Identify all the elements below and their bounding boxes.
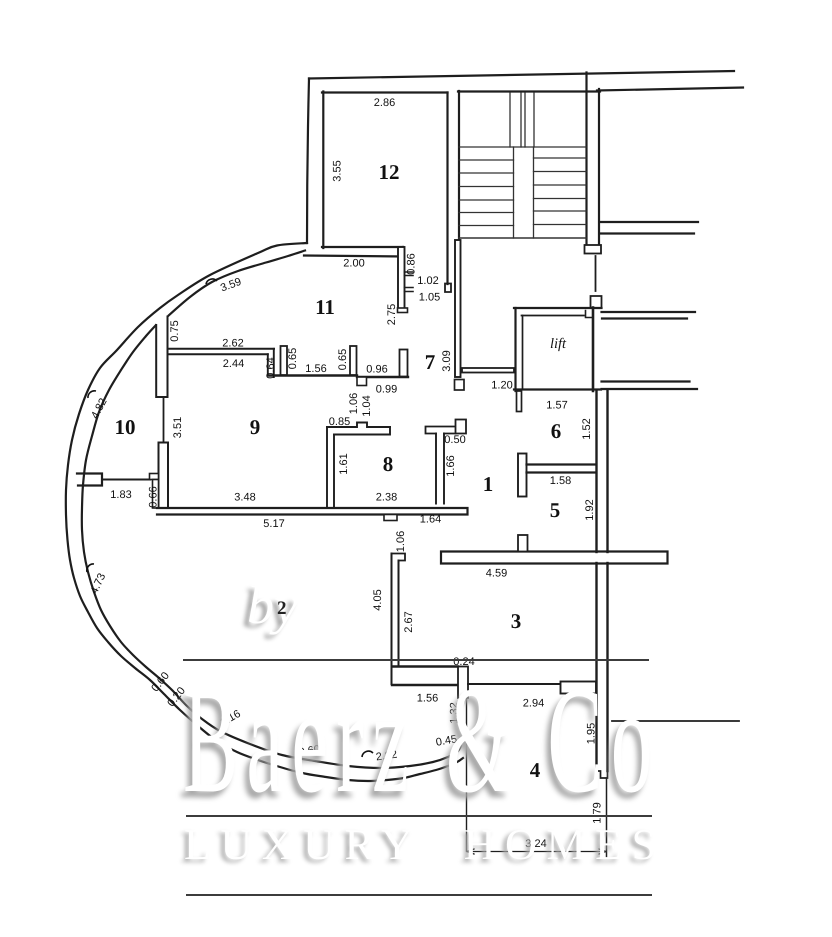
svg-text:10: 10 — [115, 415, 136, 439]
svg-text:5.17: 5.17 — [263, 518, 284, 530]
svg-text:0.86: 0.86 — [406, 253, 418, 274]
svg-text:0.96: 0.96 — [366, 364, 387, 376]
svg-text:2.00: 2.00 — [343, 258, 364, 270]
svg-text:1: 1 — [483, 472, 494, 496]
svg-text:3: 3 — [511, 609, 522, 633]
svg-text:4.73: 4.73 — [88, 571, 108, 595]
svg-text:1.04: 1.04 — [361, 395, 373, 416]
svg-text:3.59: 3.59 — [219, 276, 243, 295]
svg-text:0.65: 0.65 — [287, 348, 299, 369]
svg-text:1.57: 1.57 — [546, 400, 567, 412]
svg-text:4.82: 4.82 — [89, 396, 110, 421]
svg-text:0.50: 0.50 — [444, 434, 465, 446]
svg-text:1.52: 1.52 — [581, 418, 593, 439]
svg-text:9: 9 — [250, 415, 261, 439]
svg-text:1.06: 1.06 — [395, 531, 407, 552]
svg-text:1.06: 1.06 — [348, 393, 360, 414]
svg-text:0.99: 0.99 — [376, 384, 397, 396]
svg-text:1.02: 1.02 — [417, 275, 438, 287]
svg-text:3.48: 3.48 — [234, 492, 255, 504]
svg-text:0.75: 0.75 — [169, 320, 181, 341]
svg-text:3.09: 3.09 — [441, 350, 453, 371]
svg-text:3.55: 3.55 — [332, 160, 344, 181]
svg-text:4.05: 4.05 — [372, 589, 384, 610]
svg-text:2.67: 2.67 — [403, 611, 415, 632]
svg-text:1.92: 1.92 — [584, 499, 596, 520]
svg-text:1.05: 1.05 — [419, 292, 440, 304]
svg-text:4.59: 4.59 — [486, 568, 507, 580]
svg-text:1.66: 1.66 — [445, 455, 457, 476]
svg-text:2.44: 2.44 — [223, 358, 244, 370]
svg-text:1.56: 1.56 — [305, 363, 326, 375]
svg-text:0.65: 0.65 — [337, 349, 349, 370]
svg-text:3.51: 3.51 — [172, 417, 184, 438]
svg-text:lift: lift — [550, 336, 567, 352]
svg-text:7: 7 — [425, 350, 436, 374]
svg-text:2.62: 2.62 — [222, 338, 243, 350]
svg-text:12: 12 — [379, 160, 400, 184]
svg-text:2.38: 2.38 — [376, 492, 397, 504]
svg-text:8: 8 — [383, 452, 394, 476]
svg-text:2.75: 2.75 — [386, 304, 398, 325]
svg-text:11: 11 — [315, 295, 335, 319]
svg-text:5: 5 — [550, 498, 561, 522]
svg-text:1.64: 1.64 — [420, 514, 441, 526]
svg-text:0.85: 0.85 — [329, 416, 350, 428]
svg-text:0.66: 0.66 — [148, 486, 160, 507]
svg-text:1.83: 1.83 — [110, 489, 131, 501]
svg-text:1.61: 1.61 — [338, 453, 350, 474]
svg-text:2.86: 2.86 — [374, 97, 395, 109]
svg-text:1.58: 1.58 — [550, 475, 571, 487]
svg-text:0.64: 0.64 — [265, 357, 277, 378]
svg-text:6: 6 — [551, 419, 562, 443]
svg-text:1.20: 1.20 — [491, 380, 512, 392]
